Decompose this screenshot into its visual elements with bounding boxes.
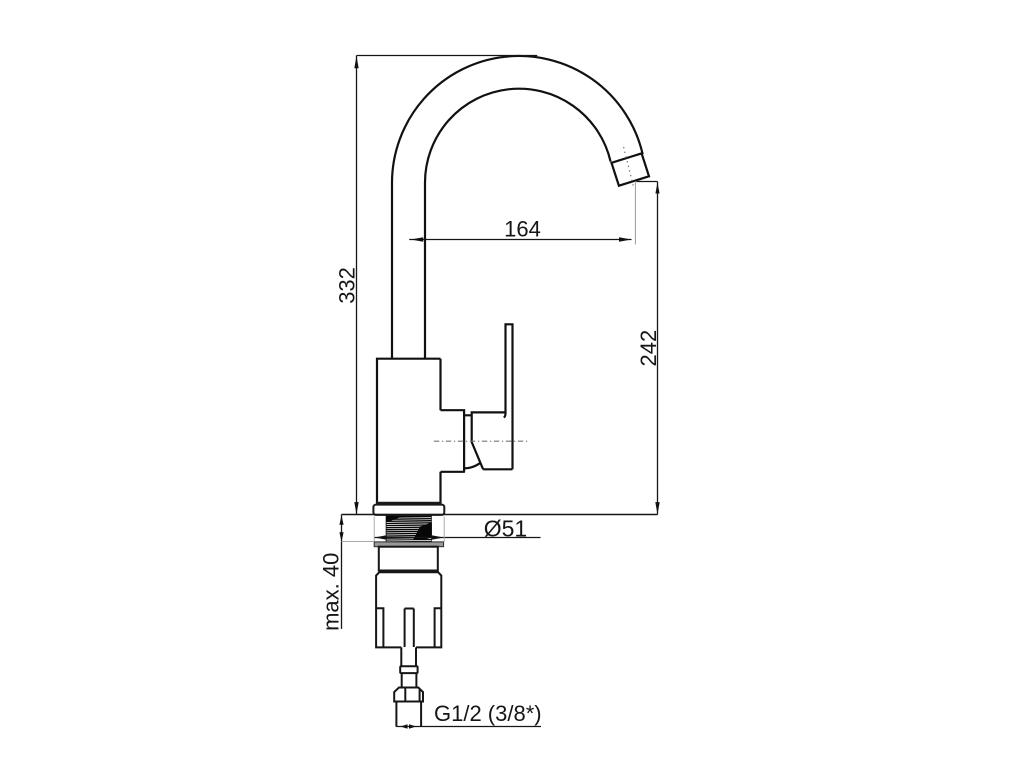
- svg-text:164: 164: [504, 217, 541, 242]
- svg-text:Ø51: Ø51: [484, 516, 527, 542]
- svg-text:332: 332: [335, 267, 360, 304]
- svg-text:max. 40: max. 40: [319, 553, 344, 631]
- svg-text:242: 242: [636, 330, 661, 367]
- svg-text:G1/2 (3/8*): G1/2 (3/8*): [434, 701, 542, 726]
